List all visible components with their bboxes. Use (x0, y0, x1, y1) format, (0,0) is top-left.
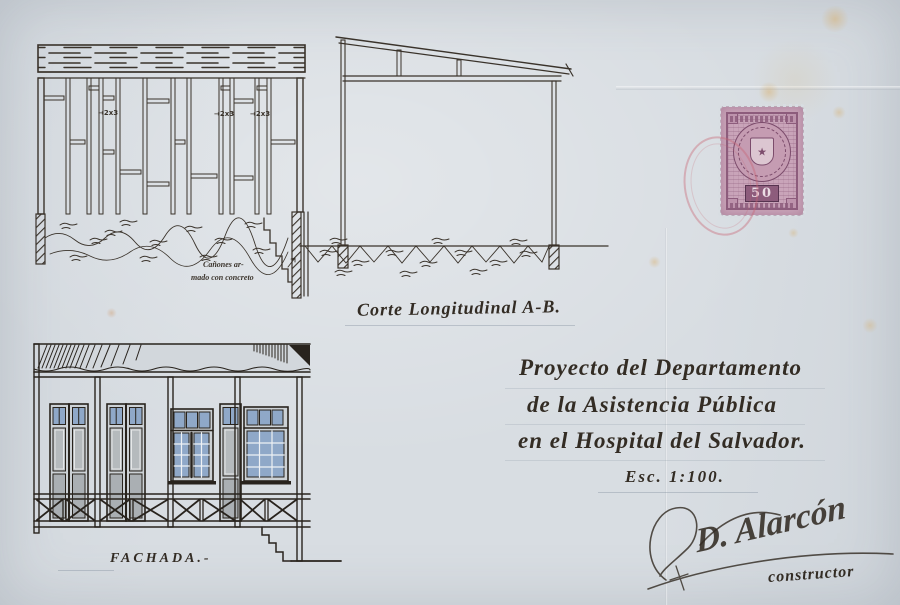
facade-window (168, 409, 216, 485)
facade-label: FACHADA.- (110, 551, 212, 567)
stud-size-label: →2x3 (98, 109, 118, 117)
title-line-2: de la Asistencia Pública (527, 392, 777, 418)
stud-size-label: →2x3 (250, 110, 270, 118)
section-label: Corte Longitudinal A-B. (357, 296, 561, 321)
facade-drawing (34, 344, 341, 561)
framing-section-drawing (36, 45, 308, 298)
blueprint-paper: Corte Longitudinal A-B. Cañones ar- mado… (0, 0, 900, 605)
facade-door (50, 404, 88, 521)
facade-door (220, 404, 241, 521)
title-line-3: en el Hospital del Salvador. (518, 428, 806, 454)
stamp-shield-star-icon: ★ (750, 138, 774, 166)
footing-note-line2: mado con concreto (191, 273, 254, 282)
title-line-1: Proyecto del Departamento (519, 355, 802, 381)
longitudinal-section-drawing (300, 37, 608, 277)
stud-size-label: →2x3 (214, 110, 234, 118)
stamp-text-band (730, 116, 794, 122)
scale-label: Esc. 1:100. (625, 467, 725, 487)
facade-window (241, 407, 291, 485)
footing-note-line1: Cañones ar- (203, 260, 244, 269)
